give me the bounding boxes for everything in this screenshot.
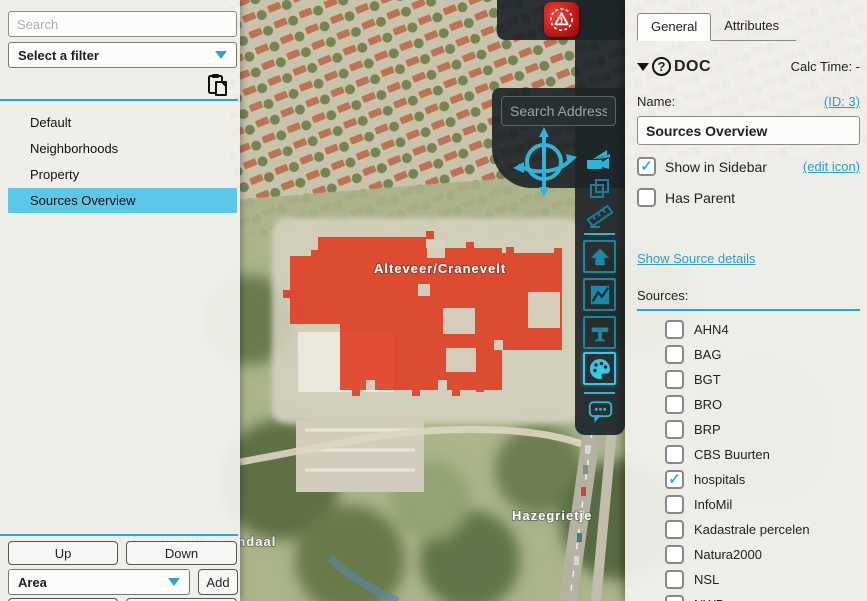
sidebar-list-item[interactable]: Neighborhoods xyxy=(0,136,240,161)
home-extent-button[interactable] xyxy=(583,240,616,273)
source-label: CBS Buurten xyxy=(694,447,770,462)
source-row: NWB xyxy=(665,595,860,601)
chart-view-button[interactable] xyxy=(583,278,616,311)
streetview-camera-button[interactable] xyxy=(583,147,617,173)
show-in-sidebar-row: Show in Sidebar (edit icon) xyxy=(637,157,860,176)
move-down-button[interactable]: Down xyxy=(126,541,237,565)
source-row: NSL xyxy=(665,570,860,589)
chat-bubble-icon xyxy=(586,399,614,425)
search-input[interactable] xyxy=(8,11,237,37)
source-label: NWB xyxy=(694,597,724,601)
source-label: BRP xyxy=(694,422,721,437)
name-label: Name: xyxy=(637,94,675,109)
source-label: Kadastrale percelen xyxy=(694,522,810,537)
area-type-select[interactable]: Area xyxy=(8,569,190,595)
ruler-icon xyxy=(586,202,614,230)
doc-section-header: ? DOC Calc Time: - xyxy=(637,57,860,76)
source-row: hospitals xyxy=(665,470,860,489)
name-row: Name: (ID: 3) xyxy=(637,94,860,109)
source-row: BGT xyxy=(665,370,860,389)
has-parent-row: Has Parent xyxy=(637,188,860,207)
source-row: CBS Buurten xyxy=(665,445,860,464)
sign-board-button[interactable] xyxy=(583,316,616,349)
warning-icon xyxy=(548,6,575,33)
sources-divider xyxy=(637,309,860,311)
source-row: BRO xyxy=(665,395,860,414)
warning-alert-button[interactable] xyxy=(544,2,579,37)
source-checkbox[interactable] xyxy=(665,520,684,539)
style-palette-button[interactable] xyxy=(583,352,616,385)
app-window: Alteveer/Cranevelt Hazegrietje Sonsbeek/… xyxy=(0,0,867,601)
home-icon xyxy=(589,246,611,268)
measure-button[interactable] xyxy=(583,203,617,229)
sidebar-list-item[interactable]: Sources Overview xyxy=(8,188,237,213)
source-checkbox[interactable] xyxy=(665,420,684,439)
properties-panel: General Attributes ? DOC Calc Time: - Na… xyxy=(625,0,867,601)
source-label: NSL xyxy=(694,572,719,587)
sidebar-item-label: Property xyxy=(30,167,79,182)
edit-icon-link[interactable]: (edit icon) xyxy=(803,159,860,174)
sidebar-item-label: Sources Overview xyxy=(30,193,135,208)
line-chart-icon xyxy=(589,284,611,306)
source-row: Kadastrale percelen xyxy=(665,520,860,539)
has-parent-checkbox[interactable] xyxy=(637,188,656,207)
sources-list: AHN4 BAG BGT BRO BRP CBS Buurten hospita… xyxy=(637,320,860,601)
source-checkbox[interactable] xyxy=(665,395,684,414)
source-checkbox[interactable] xyxy=(665,445,684,464)
show-in-sidebar-label: Show in Sidebar xyxy=(665,159,767,175)
sidebar-divider xyxy=(0,99,238,101)
map-label-hazegrietje: Hazegrietje xyxy=(512,508,592,523)
source-checkbox[interactable] xyxy=(665,545,684,564)
source-label: BRO xyxy=(694,397,722,412)
collapse-arrow-icon[interactable] xyxy=(637,63,649,71)
tab-general[interactable]: General xyxy=(637,13,711,41)
source-row: BAG xyxy=(665,345,860,364)
source-checkbox[interactable] xyxy=(665,320,684,339)
area-select-value: Area xyxy=(18,575,47,590)
add-button[interactable]: Add xyxy=(198,569,238,595)
source-checkbox[interactable] xyxy=(665,595,684,601)
toolbar-separator xyxy=(584,392,615,394)
source-row: InfoMil xyxy=(665,495,860,514)
map-label-alteveer: Alteveer/Cranevelt xyxy=(374,261,506,276)
billboard-icon xyxy=(589,322,611,344)
show-source-details-link[interactable]: Show Source details xyxy=(637,251,756,266)
sidebar-item-label: Default xyxy=(30,115,71,130)
tab-attributes[interactable]: Attributes xyxy=(711,13,792,40)
source-checkbox[interactable] xyxy=(665,570,684,589)
search-address-input[interactable] xyxy=(501,96,616,126)
source-row: AHN4 xyxy=(665,320,860,339)
source-checkbox[interactable] xyxy=(665,345,684,364)
source-label: AHN4 xyxy=(694,322,729,337)
clipboard-icon[interactable] xyxy=(206,72,230,98)
section-title: DOC xyxy=(674,58,711,76)
winged-camera-icon xyxy=(585,148,615,172)
overlapping-squares-icon xyxy=(588,177,612,201)
source-checkbox[interactable] xyxy=(665,370,684,389)
move-up-button[interactable]: Up xyxy=(8,541,118,565)
source-label: BGT xyxy=(694,372,721,387)
compass-icon[interactable] xyxy=(510,126,580,198)
show-in-sidebar-checkbox[interactable] xyxy=(637,157,656,176)
id-link[interactable]: (ID: 3) xyxy=(824,94,860,109)
filter-select[interactable]: Select a filter xyxy=(8,42,237,68)
source-label: BAG xyxy=(694,347,721,362)
map-top-toolbar xyxy=(497,0,625,40)
source-label: InfoMil xyxy=(694,497,732,512)
panel-tabs: General Attributes xyxy=(637,13,796,41)
sidebar-list-item[interactable]: Default xyxy=(0,110,240,135)
chevron-down-icon xyxy=(215,51,227,59)
source-checkbox[interactable] xyxy=(665,495,684,514)
toolbar-separator xyxy=(584,233,615,235)
chevron-down-icon xyxy=(168,578,180,586)
search-address-panel xyxy=(492,88,625,188)
layers-button[interactable] xyxy=(583,176,617,202)
name-input[interactable] xyxy=(637,116,860,145)
source-label: Natura2000 xyxy=(694,547,762,562)
left-sidebar: Select a filter Default Neighborhoods Pr… xyxy=(0,0,240,601)
source-checkbox[interactable] xyxy=(665,470,684,489)
sidebar-list-item[interactable]: Property xyxy=(0,162,240,187)
help-icon[interactable]: ? xyxy=(652,57,671,76)
palette-icon xyxy=(588,357,612,381)
sidebar-divider xyxy=(0,534,238,536)
source-row: Natura2000 xyxy=(665,545,860,564)
sidebar-filter-list: Default Neighborhoods Property Sources O… xyxy=(0,110,240,214)
filter-select-value: Select a filter xyxy=(18,48,99,63)
sidebar-item-label: Neighborhoods xyxy=(30,141,118,156)
source-row: BRP xyxy=(665,420,860,439)
feedback-chat-button[interactable] xyxy=(583,399,617,425)
calc-time-text: Calc Time: - xyxy=(791,59,860,74)
sources-label: Sources: xyxy=(637,288,860,303)
source-label: hospitals xyxy=(694,472,745,487)
has-parent-label: Has Parent xyxy=(665,190,735,206)
